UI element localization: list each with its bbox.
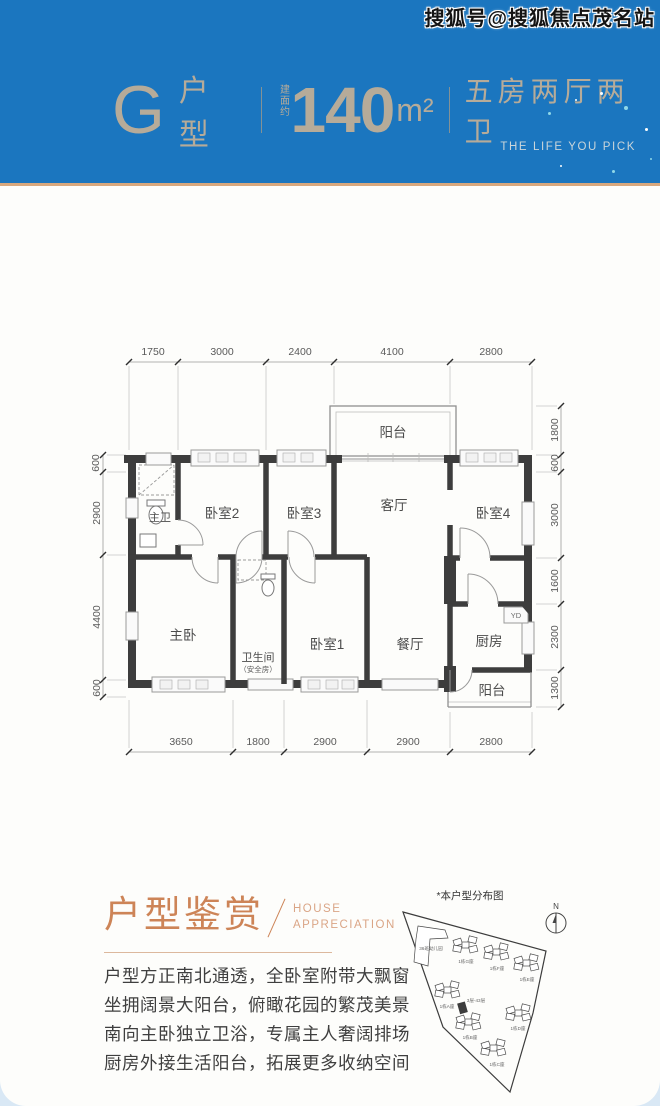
highlighted-unit <box>458 1002 467 1014</box>
dim-bottom-2: 1800 <box>246 736 270 748</box>
building-cluster-A <box>435 981 460 998</box>
title-divider <box>261 87 262 133</box>
room-label-master-bedroom: 主卧 <box>170 628 197 643</box>
dim-right-2: 600 <box>549 454 561 472</box>
unit-letter: G <box>112 76 165 144</box>
site-map-title: *本户型分布图 <box>436 889 503 902</box>
dim-top-3: 2400 <box>288 346 312 358</box>
dim-left-3: 4400 <box>91 605 103 629</box>
building-label-D: 1栋D座 <box>510 1025 525 1032</box>
room-label-living: 客厅 <box>381 497 408 513</box>
title-divider <box>449 87 450 133</box>
building-label-F: 1栋F座 <box>490 965 505 972</box>
dim-left-1: 600 <box>90 454 102 472</box>
compass-icon <box>546 913 566 933</box>
floor-plan: 1750 3000 2400 4100 2800 3650 1800 2900 … <box>0 330 660 780</box>
paragraph-line: 坐拥阔景大阳台，俯瞰花园的繁茂美景 <box>104 996 410 1014</box>
area-unit: m² <box>396 92 433 129</box>
building-cluster-E <box>514 954 539 971</box>
slash-divider <box>268 899 286 938</box>
decor-dot <box>645 128 648 131</box>
sohu-watermark: 搜狐号@搜狐焦点茂名站 <box>424 2 655 31</box>
appreciation-section: 户型鉴赏 HOUSE APPRECIATION 户型方正南北通透，全卧室附带大飘… <box>104 893 410 1083</box>
decor-dot <box>560 165 562 167</box>
dim-right-6: 1300 <box>549 676 561 700</box>
dim-bottom-4: 2900 <box>396 736 420 748</box>
divider-rule <box>104 952 332 953</box>
room-label-balcony-bottom: 阳台 <box>479 683 506 698</box>
room-label-balcony-top: 阳台 <box>380 425 407 440</box>
decor-dot <box>624 106 628 110</box>
room-label-bedroom1: 卧室1 <box>310 636 345 652</box>
subtitle-line2: APPRECIATION <box>293 918 396 934</box>
dim-left-4: 600 <box>91 679 103 697</box>
room-label-kitchen: 厨房 <box>476 634 503 649</box>
building-label-G: 1栋G座 <box>458 958 474 965</box>
paragraph-line: 厨房外接生活阳台，拓展更多收纳空间 <box>104 1054 410 1072</box>
building-cluster-G <box>453 936 478 953</box>
decor-dot <box>575 99 577 101</box>
decor-dot <box>650 158 652 160</box>
room-label-bedroom2: 卧室2 <box>205 505 240 521</box>
dim-bottom-1: 3650 <box>169 736 193 748</box>
appreciation-header: 户型鉴赏 HOUSE APPRECIATION <box>104 893 410 939</box>
page-card: G 户型 建面约 140 m² 五房两厅两卫 THE LIFE YOU PICK… <box>0 0 660 1106</box>
dim-top-2: 3000 <box>210 346 234 358</box>
decor-dot <box>548 112 551 115</box>
building-label-B: 1栋B座 <box>463 1034 478 1041</box>
room-label-bathroom-note: （安全房） <box>239 664 277 674</box>
kindergarten-label: 36班幼儿园 <box>419 945 443 952</box>
building-cluster-C <box>481 1039 506 1056</box>
dim-top-1: 1750 <box>141 346 165 358</box>
highlight-floors-label: 3层-43层 <box>467 998 486 1004</box>
layout-description: 五房两厅两卫 <box>465 70 660 150</box>
site-map: *本户型分布图 N 36班幼儿园 1栋G座 1栋F座 1栋E座 1栋A座 3层-… <box>390 882 660 1106</box>
area-prefix: 建面约 <box>277 84 288 136</box>
building-cluster-D <box>506 1004 531 1021</box>
room-label-bathroom: 卫生间 <box>242 650 275 664</box>
outer-walls <box>124 455 532 688</box>
brand-slogan: THE LIFE YOU PICK <box>500 141 636 153</box>
room-label-dining: 餐厅 <box>397 637 424 652</box>
building-label-A: 1栋A座 <box>440 1003 455 1010</box>
dim-bottom-5: 2800 <box>479 736 503 748</box>
decor-dot <box>612 170 615 173</box>
appreciation-paragraph: 户型方正南北通透，全卧室附带大飘窗 坐拥阔景大阳台，俯瞰花园的繁茂美景 南向主卧… <box>104 967 410 1072</box>
dim-right-4: 1600 <box>549 569 561 593</box>
building-cluster-F <box>484 943 509 960</box>
building-cluster-B <box>456 1013 481 1030</box>
room-label-master-bath: 主卫 <box>149 511 171 524</box>
building-label-E: 1栋E座 <box>520 976 535 983</box>
room-label-bedroom3: 卧室3 <box>287 505 322 521</box>
dim-right-3: 3000 <box>549 503 561 527</box>
yd-label: YD <box>511 611 522 620</box>
room-label-bedroom4: 卧室4 <box>476 505 511 521</box>
area-value: 140 <box>291 78 395 142</box>
dim-bottom-3: 2900 <box>313 736 337 748</box>
compass-north-label: N <box>553 902 559 911</box>
dim-left-2: 2900 <box>91 501 103 525</box>
dim-top-4: 4100 <box>380 346 404 358</box>
subtitle-line1: HOUSE <box>293 902 396 918</box>
dim-right-5: 2300 <box>549 625 561 649</box>
appreciation-subtitle: HOUSE APPRECIATION <box>293 893 396 933</box>
decor-dot <box>600 92 603 95</box>
appreciation-title: 户型鉴赏 <box>104 893 264 937</box>
paragraph-line: 南向主卧独立卫浴，专属主人奢阔排场 <box>104 1025 410 1043</box>
building-label-C: 1栋C座 <box>489 1061 504 1068</box>
unit-type-label: 户型 <box>179 66 246 154</box>
dim-right-1: 1800 <box>549 418 561 442</box>
dim-top-5: 2800 <box>479 346 503 358</box>
windows <box>126 450 534 692</box>
paragraph-line: 户型方正南北通透，全卧室附带大飘窗 <box>104 967 410 985</box>
